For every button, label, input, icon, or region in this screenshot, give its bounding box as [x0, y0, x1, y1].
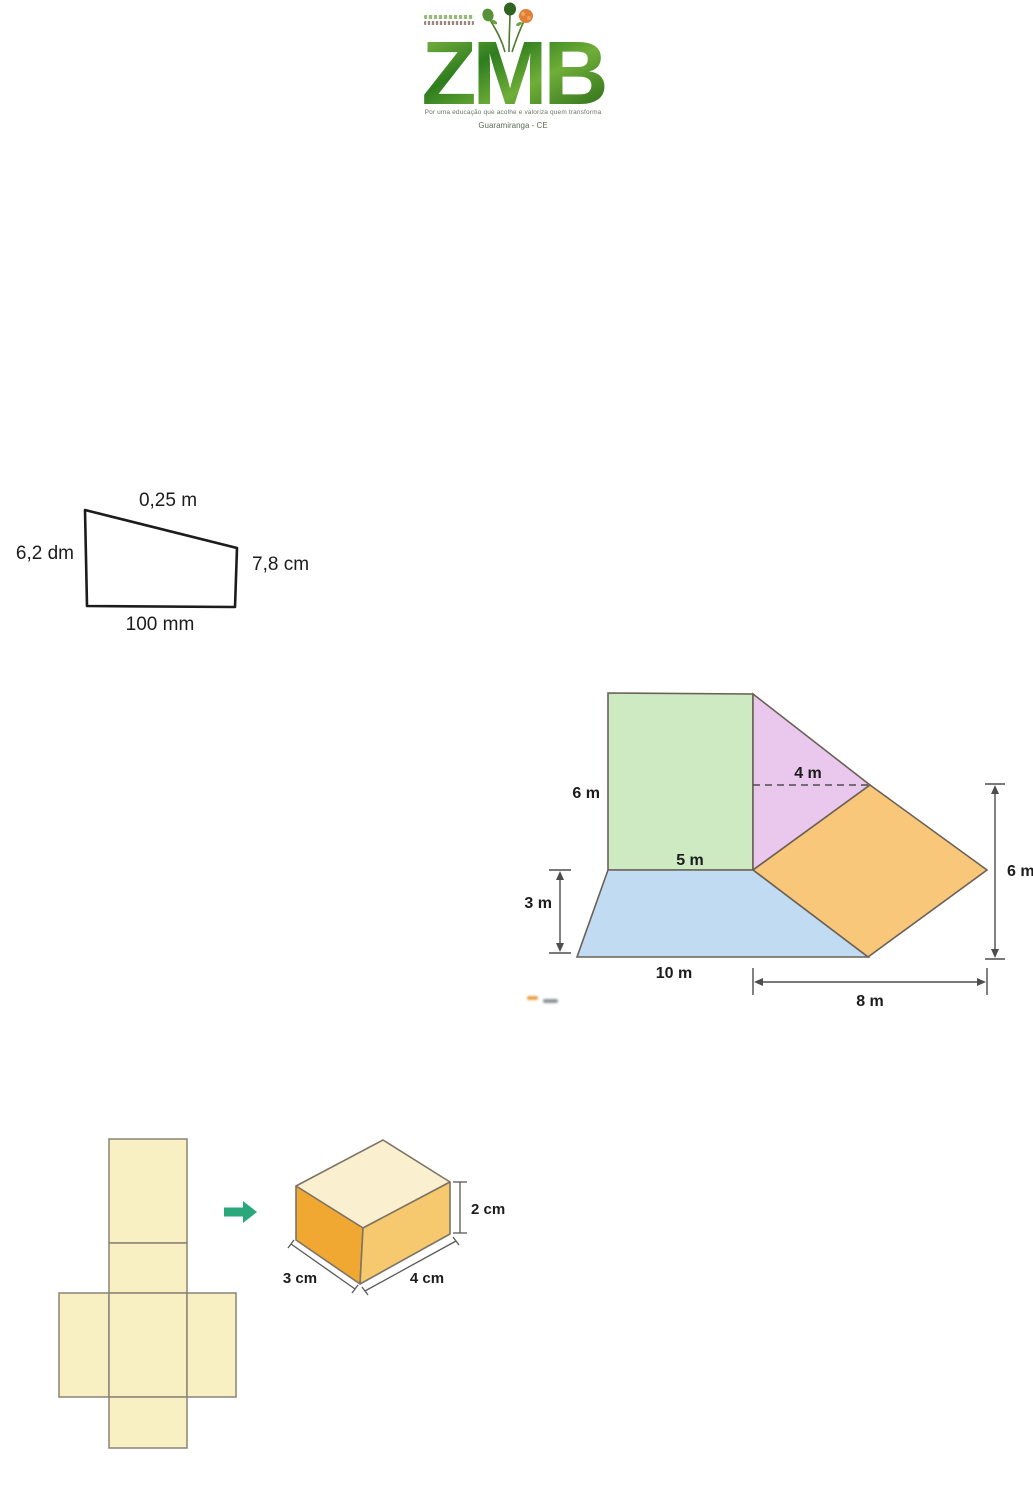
dimension-2cm [453, 1182, 467, 1233]
composite-figure: 6 m 5 m 4 m 3 m 10 m 6 m 8 m [518, 668, 1033, 1013]
box-depth-label: 3 cm [283, 1270, 317, 1287]
logo-small-text-line [424, 15, 474, 19]
print-artifact [543, 999, 558, 1003]
bottom-width-label: 8 m [856, 993, 884, 1010]
school-logo: ZMB Por uma educação que acolhe e valori… [408, 2, 618, 142]
right-height-label: 6 m [1007, 863, 1033, 880]
green-square-shape [608, 693, 753, 870]
box-height-label: 2 cm [471, 1201, 505, 1218]
arrow-right-icon [224, 1200, 258, 1224]
triangle-width-label: 4 m [794, 765, 822, 782]
dimension-8m-arrow [753, 968, 987, 995]
trapezoid-top-label: 0,25 m [139, 492, 197, 511]
trapezoid-base-label: 10 m [656, 965, 692, 982]
box-width-label: 4 cm [410, 1270, 444, 1287]
logo-location: Guaramiranga - CE [408, 121, 618, 130]
trapezoid-figure: 0,25 m 6,2 dm 7,8 cm 100 mm [0, 492, 340, 652]
net-faces [59, 1139, 236, 1448]
dimension-6m-right-arrow [985, 784, 1005, 959]
print-artifact [527, 996, 538, 1000]
trapezoid-bottom-label: 100 mm [126, 614, 195, 635]
trapezoid-right-label: 7,8 cm [252, 554, 309, 575]
box-3d-figure: 2 cm 3 cm 4 cm [275, 1132, 525, 1297]
dimension-3m-arrow [549, 870, 571, 953]
trapezoid-height-label: 3 m [524, 895, 552, 912]
square-base-label: 5 m [676, 852, 704, 869]
logo-tagline: Por uma educação que acolhe e valoriza q… [408, 109, 618, 116]
logo-small-text-line [424, 21, 474, 25]
trapezoid-left-label: 6,2 dm [16, 543, 74, 564]
square-height-label: 6 m [572, 785, 600, 802]
logo-text: ZMB [422, 24, 605, 112]
document-page: ZMB Por uma educação que acolhe e valori… [0, 0, 1033, 1497]
trapezoid-shape [85, 510, 237, 607]
box-net-figure [40, 1125, 280, 1465]
